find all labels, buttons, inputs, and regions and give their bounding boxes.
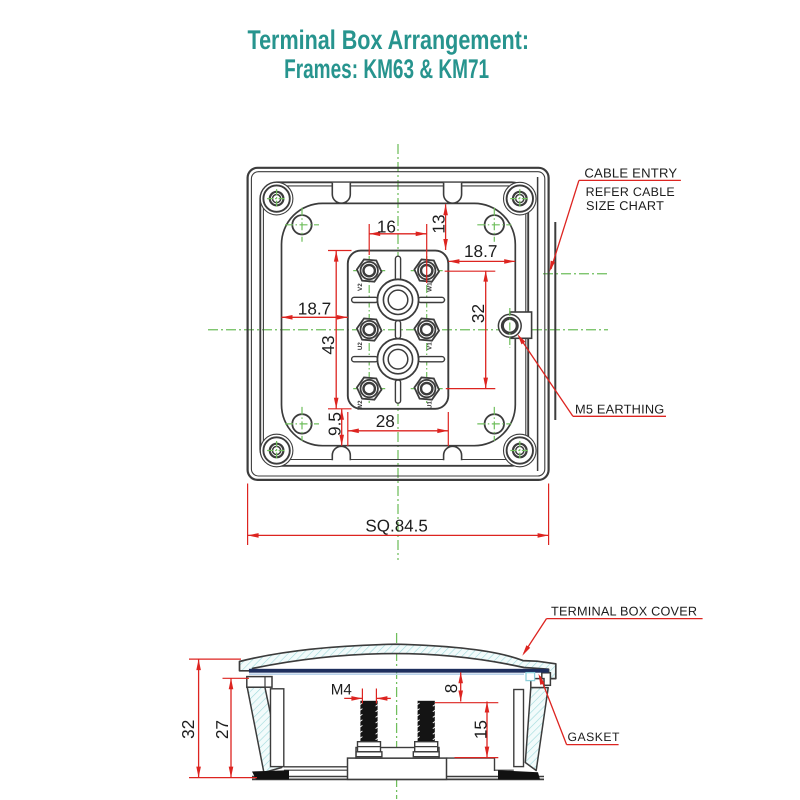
svg-text:SQ.84.5: SQ.84.5 xyxy=(365,517,427,536)
svg-text:M5 EARTHING: M5 EARTHING xyxy=(575,402,664,417)
svg-text:W1: W1 xyxy=(427,282,434,292)
svg-text:M4: M4 xyxy=(331,681,352,698)
svg-text:TERMINAL BOX COVER: TERMINAL BOX COVER xyxy=(551,604,697,618)
svg-text:CABLE ENTRY: CABLE ENTRY xyxy=(584,166,677,181)
svg-text:13: 13 xyxy=(428,214,448,233)
svg-text:9.5: 9.5 xyxy=(324,412,344,436)
svg-text:Terminal Box Arrangement:: Terminal Box Arrangement: xyxy=(248,25,530,55)
svg-text:16: 16 xyxy=(377,216,396,236)
svg-text:15: 15 xyxy=(470,720,490,739)
svg-text:27: 27 xyxy=(212,720,232,739)
svg-text:18.7: 18.7 xyxy=(298,298,331,318)
svg-text:43: 43 xyxy=(318,335,338,354)
svg-text:U1: U1 xyxy=(427,401,434,410)
svg-text:W2: W2 xyxy=(357,400,364,410)
svg-text:8: 8 xyxy=(441,684,461,694)
svg-text:SIZE CHART: SIZE CHART xyxy=(586,199,664,213)
svg-text:U2: U2 xyxy=(357,342,364,351)
svg-text:REFER CABLE: REFER CABLE xyxy=(586,185,675,199)
svg-text:V1: V1 xyxy=(427,342,434,350)
svg-text:GASKET: GASKET xyxy=(568,730,620,744)
svg-text:32: 32 xyxy=(178,720,198,739)
svg-text:18.7: 18.7 xyxy=(464,241,497,261)
svg-text:28: 28 xyxy=(376,411,395,431)
svg-text:Frames: KM63 & KM71: Frames: KM63 & KM71 xyxy=(284,54,489,84)
svg-text:V2: V2 xyxy=(357,283,364,291)
svg-text:32: 32 xyxy=(468,304,488,323)
